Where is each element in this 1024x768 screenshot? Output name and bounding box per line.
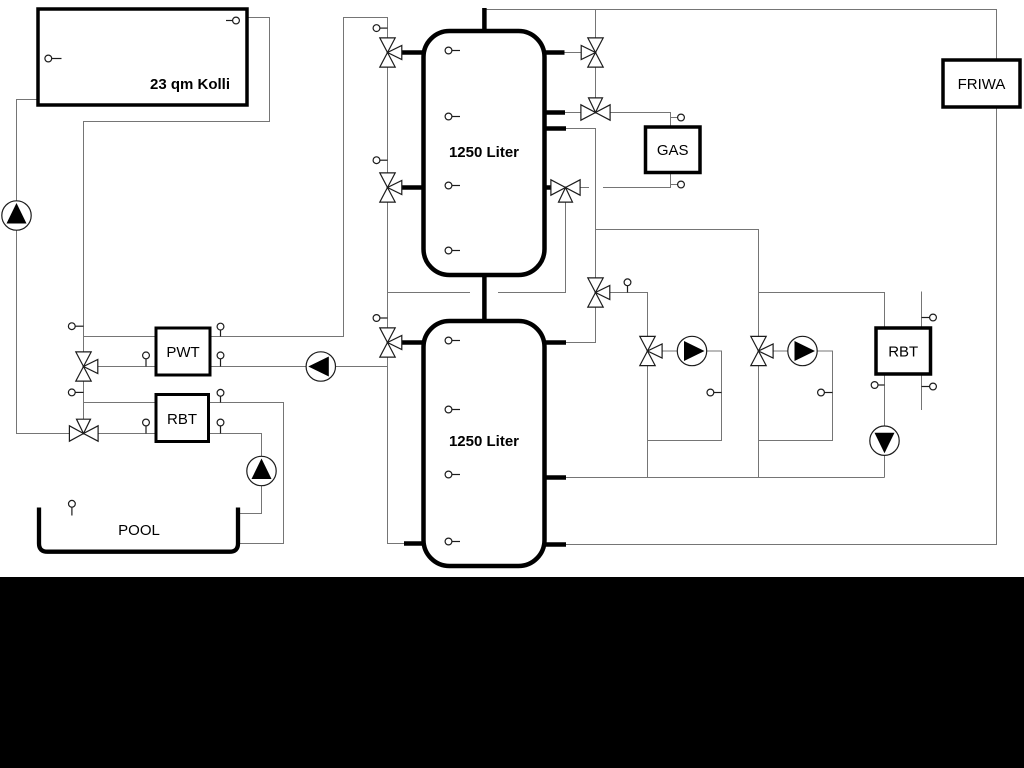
svg-text:FRIWA: FRIWA [958,76,1006,93]
svg-text:23 qm Kolli: 23 qm Kolli [150,76,230,93]
svg-text:POOL: POOL [118,522,160,539]
svg-text:1250 Liter: 1250 Liter [449,433,519,450]
svg-text:1250 Liter: 1250 Liter [449,144,519,161]
svg-text:RBT: RBT [888,344,918,361]
svg-text:RBT: RBT [167,411,197,428]
svg-text:GAS: GAS [657,142,689,159]
svg-text:PWT: PWT [166,344,199,361]
